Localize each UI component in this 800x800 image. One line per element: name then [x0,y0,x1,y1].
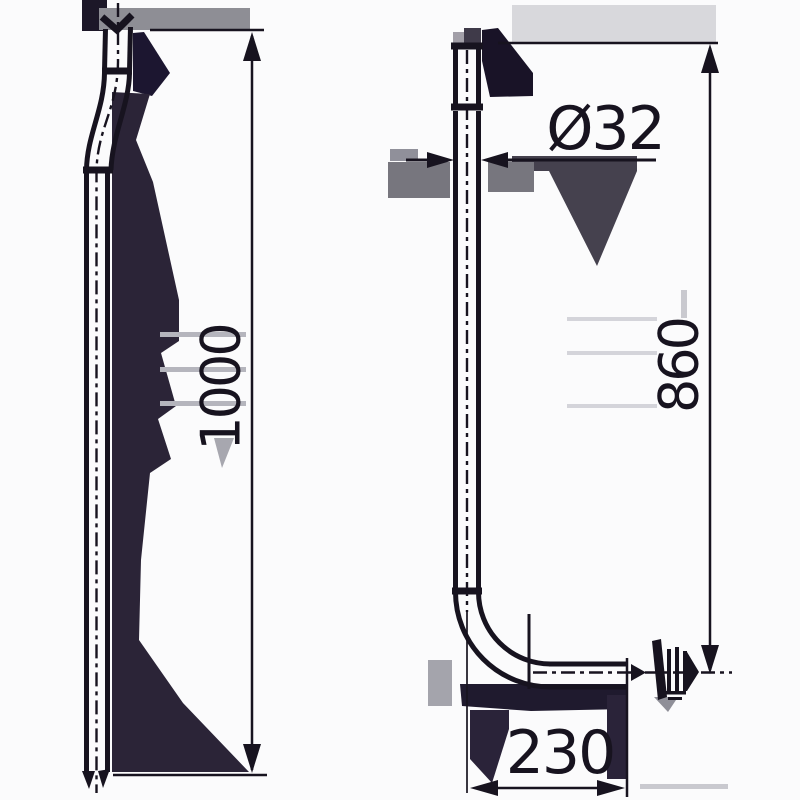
flush-pipe-drawing: 1000 Ø32 [0,0,800,800]
dimension-label-1000: 1000 [190,325,253,450]
pipe-end-chevron [82,771,95,789]
sleeve-rib [667,649,671,691]
artifact-streak-vertical [681,290,687,318]
sleeve-detail [664,691,686,695]
pipe-bend-wall [87,73,105,170]
wall-sleeve-connector [652,639,699,700]
pipe-wall [130,27,131,71]
pipe-end-chevron [98,769,110,788]
artifact-patch-left-of-230 [470,710,509,783]
arrowhead-left [470,780,498,796]
arrowhead-up [701,44,719,73]
arrowhead-up [243,32,261,61]
dimension-label-diameter: Ø32 [546,94,664,164]
arrowhead-down [701,645,719,674]
dimension-label-230: 230 [506,718,615,788]
dimension-label-860: 860 [648,319,711,413]
sleeve-rib [683,651,687,691]
pipe-wall [105,29,106,71]
artifact-line-echo-bottom-right [640,784,728,789]
artifact-gray-under-dim-right [488,162,534,192]
elbow-inner-wall [479,592,551,664]
artifact-gray-under-dim-left [388,162,450,198]
artifact-gray-left-of-elbow [428,660,452,706]
artifact-pipe-cap-dark [464,28,481,44]
artifact-top-right-gray-band [512,5,716,43]
artifact-wedge-left-pipe-top [133,32,170,96]
technical-drawing-canvas: 1000 Ø32 [0,0,800,800]
artifact-streak [567,317,657,321]
artifact-pipe-cap-gray [453,32,464,44]
artifact-streak [567,404,657,408]
sleeve-rib [652,639,667,700]
sleeve-rib [675,647,679,693]
artifact-streak [567,351,657,355]
sleeve-detail [668,697,682,700]
